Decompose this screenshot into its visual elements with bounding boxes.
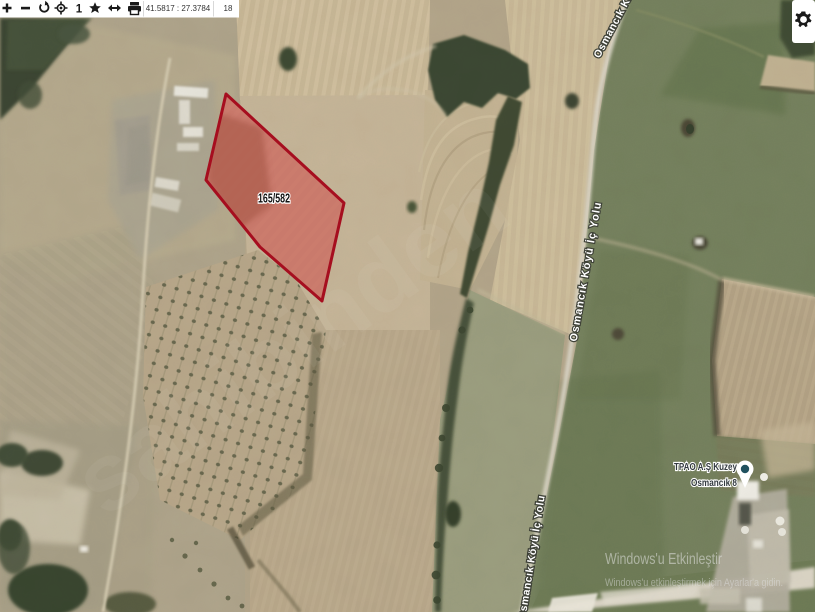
svg-text:TPAO A.Ş Kuzey: TPAO A.Ş Kuzey: [674, 462, 737, 473]
svg-text:Windows'u etkinleştirmek için: Windows'u etkinleştirmek için Ayarlar'a …: [605, 577, 783, 589]
svg-text:Osmancık 8: Osmancık 8: [691, 478, 737, 489]
svg-text:18: 18: [224, 4, 233, 13]
svg-text:41.5817 : 27.3784: 41.5817 : 27.3784: [146, 4, 211, 13]
svg-text:1: 1: [76, 4, 83, 16]
svg-text:Windows'u Etkinleştir: Windows'u Etkinleştir: [605, 551, 722, 568]
svg-text:165/582: 165/582: [258, 192, 290, 206]
